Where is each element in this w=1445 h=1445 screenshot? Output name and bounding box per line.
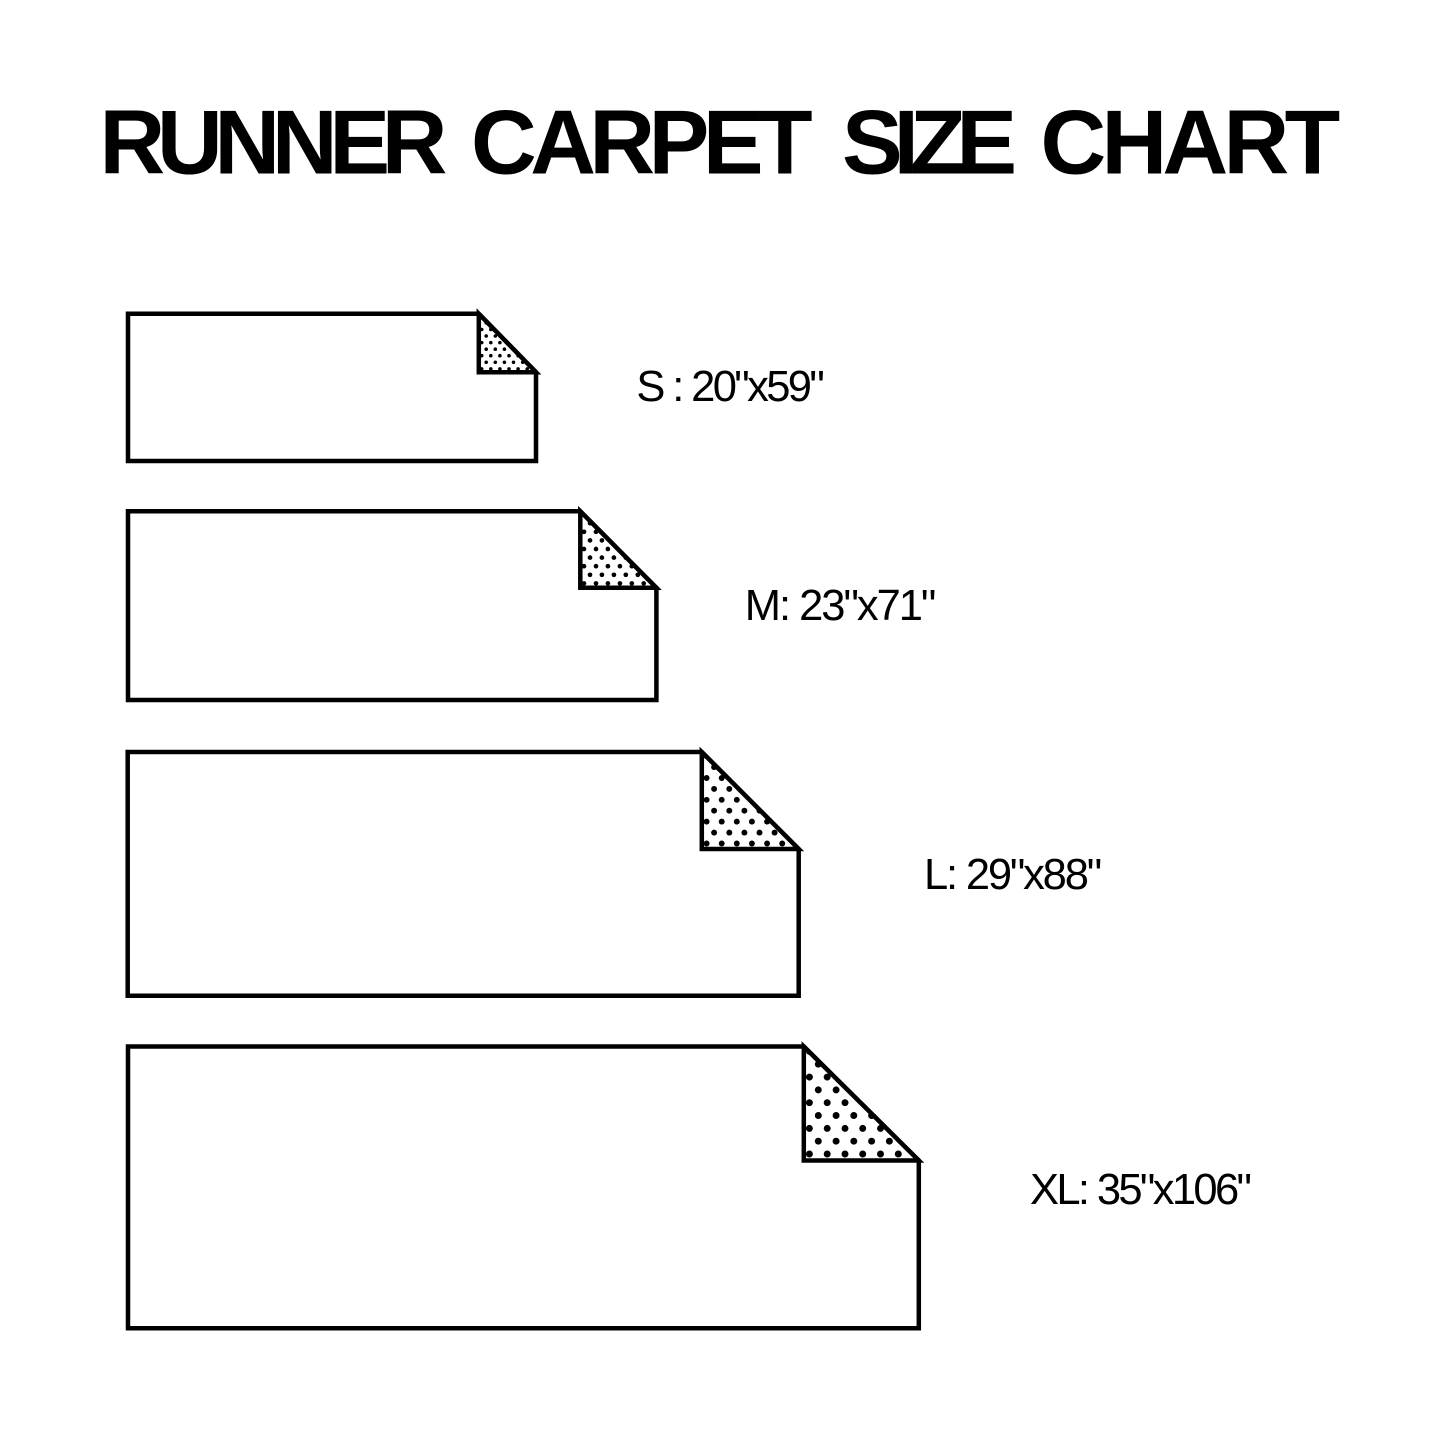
svg-text:XL: 35"x106": XL: 35"x106" [1030, 1166, 1250, 1214]
svg-text:RUNNERCARPETSIZECHART: RUNNERCARPETSIZECHART [100, 93, 1340, 194]
svg-text:M: 23"x71": M: 23"x71" [745, 582, 935, 630]
svg-text:L: 29"x88": L: 29"x88" [924, 851, 1101, 899]
svg-text:S : 20"x59": S : 20"x59" [636, 363, 823, 411]
